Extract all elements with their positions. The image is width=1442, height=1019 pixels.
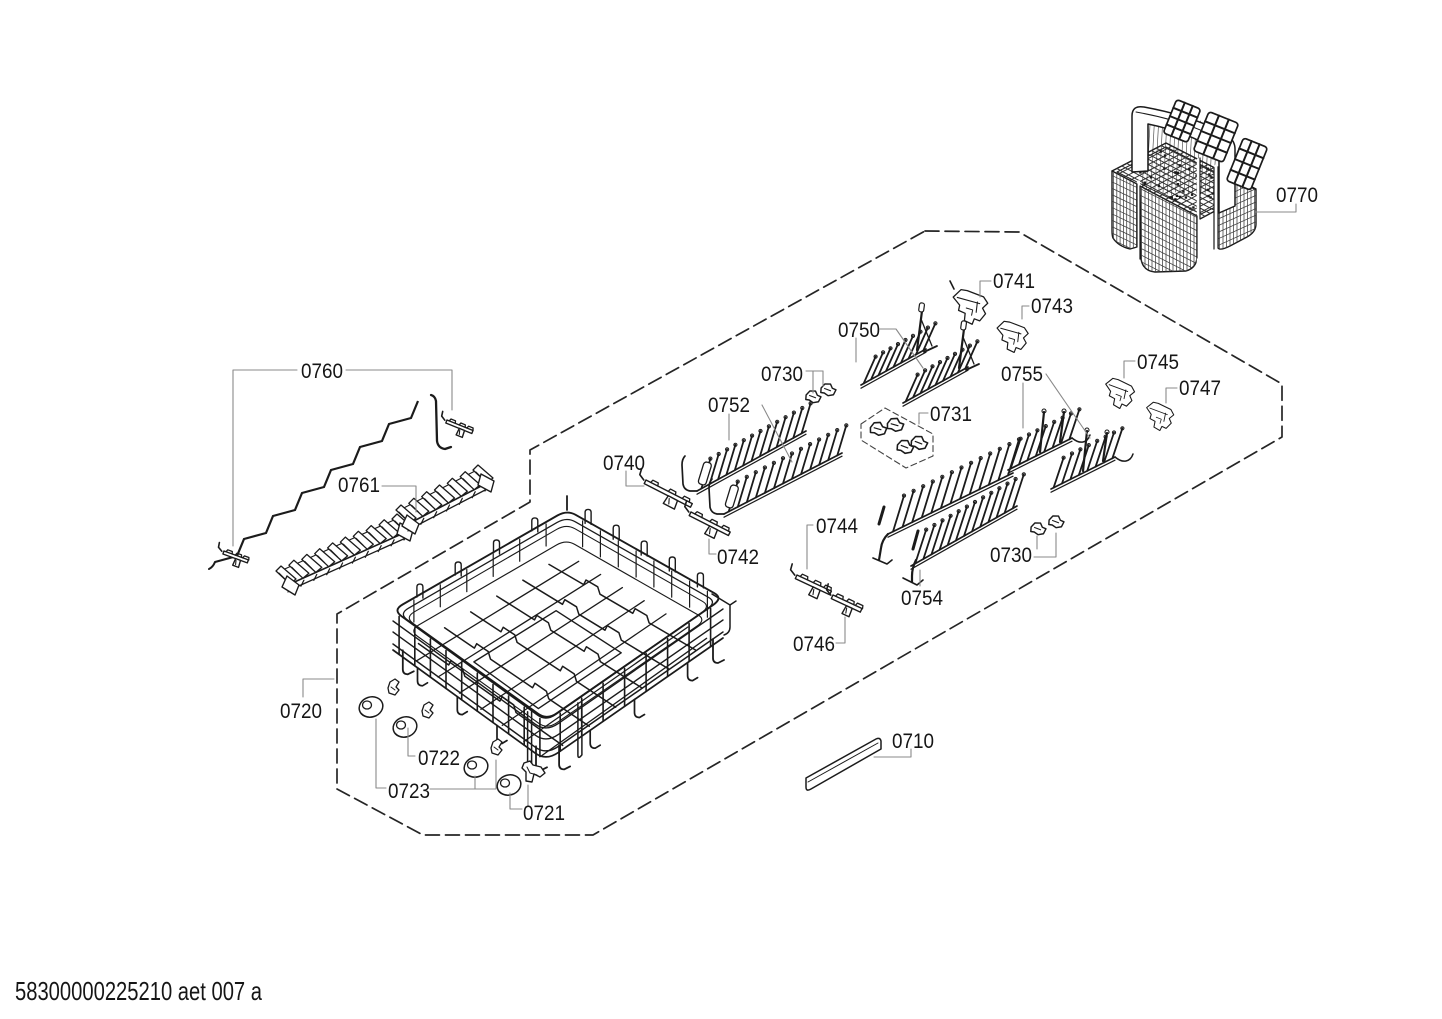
svg-text:0710: 0710	[892, 730, 934, 753]
svg-text:0750: 0750	[838, 319, 880, 342]
svg-text:0723: 0723	[388, 780, 430, 803]
svg-text:0730: 0730	[990, 544, 1032, 567]
svg-text:0760: 0760	[301, 360, 343, 383]
svg-text:0755: 0755	[1001, 363, 1043, 386]
svg-text:0761: 0761	[338, 474, 380, 497]
svg-text:0743: 0743	[1031, 295, 1073, 318]
svg-text:0754: 0754	[901, 587, 943, 610]
svg-text:0744: 0744	[816, 515, 858, 538]
svg-text:0740: 0740	[603, 452, 645, 475]
svg-text:0721: 0721	[523, 802, 565, 825]
svg-text:0747: 0747	[1179, 377, 1221, 400]
svg-text:0742: 0742	[717, 546, 759, 569]
svg-text:0720: 0720	[280, 700, 322, 723]
svg-text:0741: 0741	[993, 270, 1035, 293]
svg-text:0730: 0730	[761, 363, 803, 386]
svg-text:0745: 0745	[1137, 351, 1179, 374]
svg-text:0731: 0731	[930, 403, 972, 426]
svg-text:0770: 0770	[1276, 184, 1318, 207]
svg-text:0722: 0722	[418, 747, 460, 770]
svg-text:0752: 0752	[708, 394, 750, 417]
svg-text:0746: 0746	[793, 633, 835, 656]
svg-text:58300000225210 aet 007 a: 58300000225210 aet 007 a	[15, 976, 262, 1006]
